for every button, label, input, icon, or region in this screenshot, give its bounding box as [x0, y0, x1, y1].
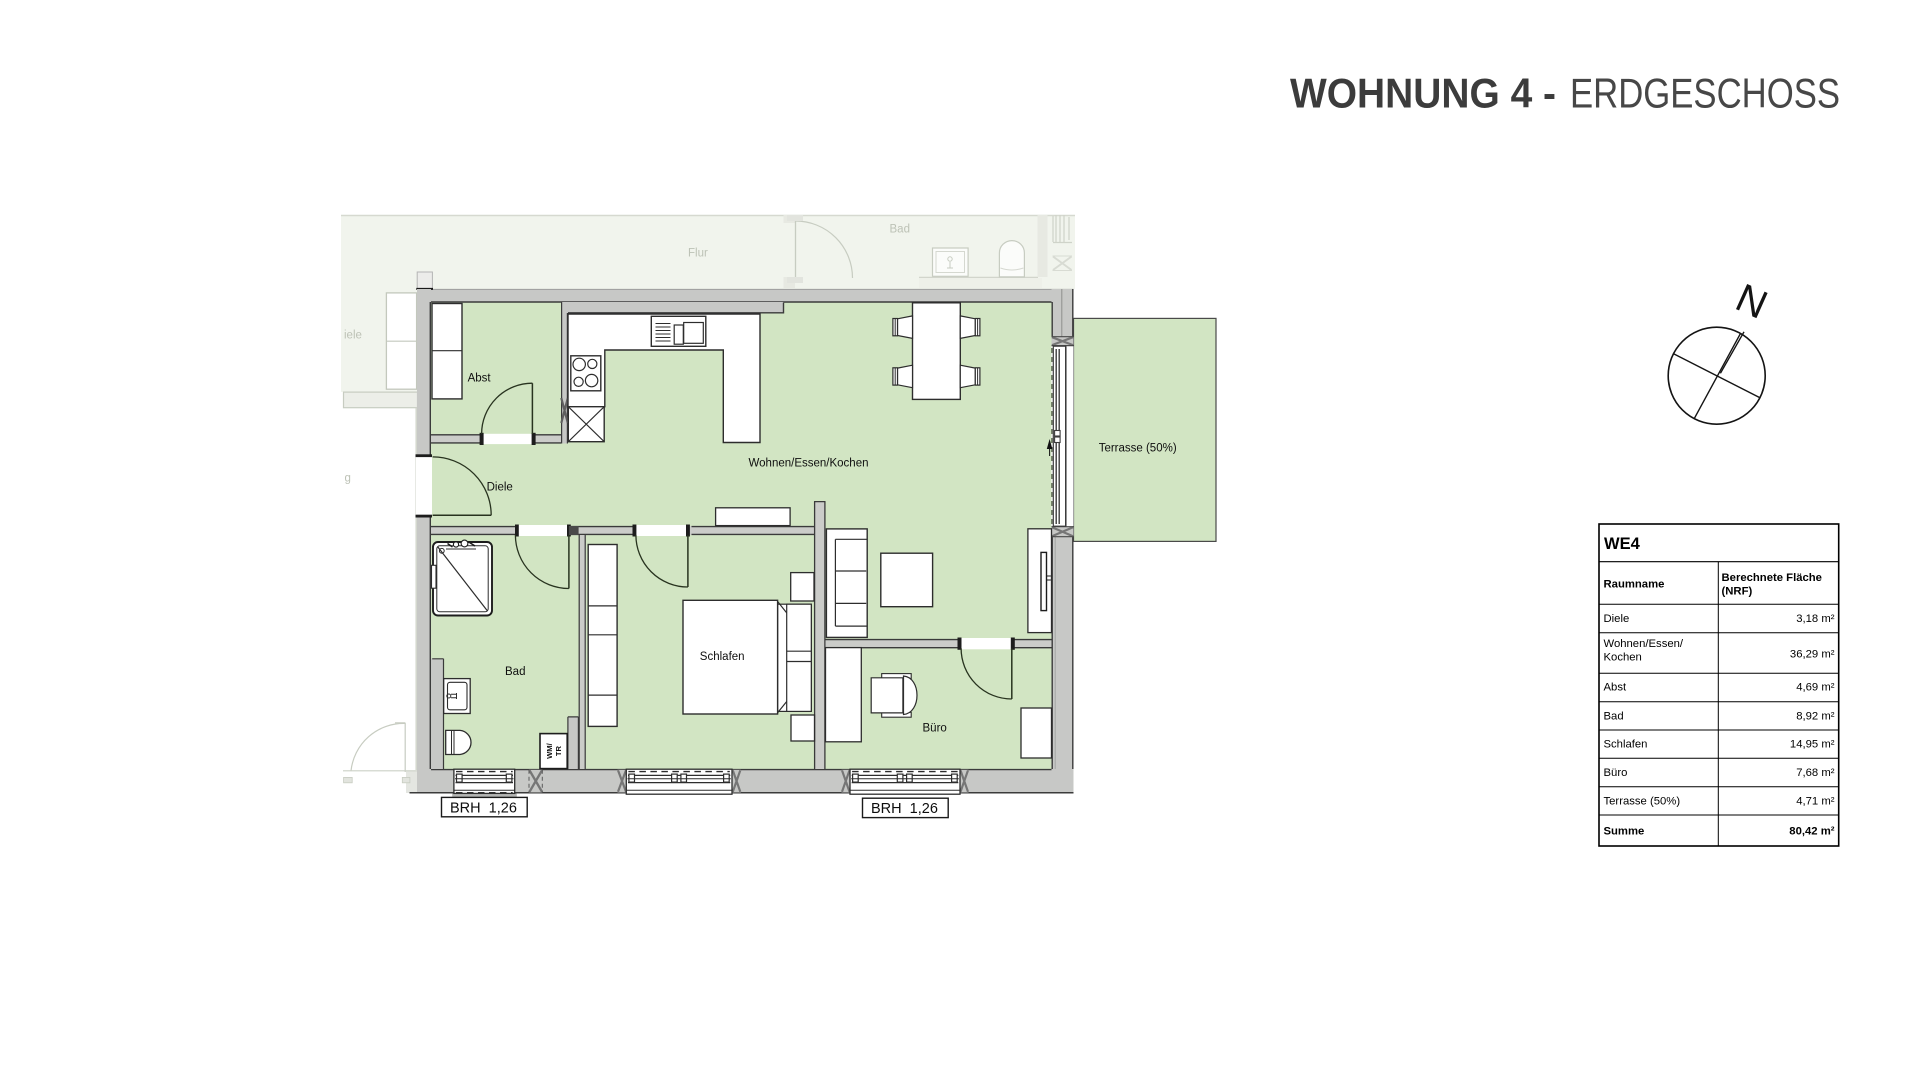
svg-text:Abst: Abst: [468, 372, 492, 384]
svg-text:iele: iele: [344, 330, 362, 342]
svg-text:Wohnen/Essen/Kochen: Wohnen/Essen/Kochen: [749, 457, 869, 469]
svg-text:WM/: WM/: [545, 742, 554, 758]
svg-text:WE4: WE4: [1604, 535, 1641, 553]
svg-text:14,95 m²: 14,95 m²: [1790, 739, 1835, 751]
svg-text:Wohnen/Essen/: Wohnen/Essen/: [1604, 638, 1684, 650]
svg-text:g: g: [345, 473, 351, 485]
svg-text:Schlafen: Schlafen: [700, 651, 745, 663]
svg-text:Abst: Abst: [1604, 682, 1627, 694]
svg-text:Terrasse (50%): Terrasse (50%): [1099, 442, 1177, 454]
svg-text:7,68 m²: 7,68 m²: [1796, 767, 1835, 779]
svg-text:BRH 1,26: BRH 1,26: [871, 801, 938, 817]
svg-text:Bad: Bad: [1604, 710, 1624, 722]
svg-text:TR: TR: [554, 746, 563, 757]
svg-text:3,18 m²: 3,18 m²: [1796, 613, 1835, 625]
svg-text:Bad: Bad: [505, 666, 525, 678]
svg-text:Flur: Flur: [688, 248, 708, 260]
svg-text:Berechnete Fläche: Berechnete Fläche: [1722, 572, 1822, 584]
svg-text:8,92 m²: 8,92 m²: [1796, 710, 1835, 722]
svg-text:4,71 m²: 4,71 m²: [1796, 795, 1835, 807]
svg-text:Schlafen: Schlafen: [1604, 739, 1648, 751]
svg-text:Diele: Diele: [487, 481, 513, 493]
svg-text:Kochen: Kochen: [1604, 652, 1642, 664]
svg-text:Büro: Büro: [1604, 767, 1628, 779]
svg-text:Terrasse (50%): Terrasse (50%): [1604, 795, 1681, 807]
svg-text:Büro: Büro: [923, 722, 947, 734]
svg-text:Summe: Summe: [1604, 826, 1645, 838]
svg-text:Bad: Bad: [890, 224, 910, 236]
svg-text:Raumname: Raumname: [1604, 579, 1665, 591]
svg-text:Diele: Diele: [1604, 613, 1630, 625]
svg-text:(NRF): (NRF): [1722, 586, 1753, 598]
svg-text:80,42 m²: 80,42 m²: [1789, 826, 1834, 838]
svg-text:36,29 m²: 36,29 m²: [1790, 649, 1835, 661]
svg-text:BRH 1,26: BRH 1,26: [450, 800, 517, 816]
svg-text:4,69 m²: 4,69 m²: [1796, 682, 1835, 694]
